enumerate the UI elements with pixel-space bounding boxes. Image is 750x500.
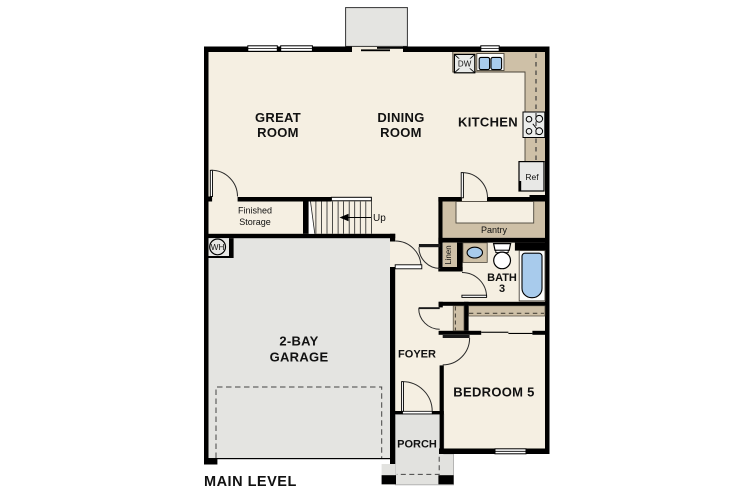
- svg-text:FOYER: FOYER: [398, 349, 436, 361]
- svg-text:2-BAY: 2-BAY: [279, 334, 318, 349]
- svg-text:Storage: Storage: [239, 217, 271, 227]
- svg-text:KITCHEN: KITCHEN: [458, 115, 518, 130]
- svg-text:BEDROOM 5: BEDROOM 5: [453, 385, 534, 400]
- svg-text:3: 3: [499, 283, 505, 295]
- svg-text:GREAT: GREAT: [255, 110, 301, 125]
- svg-text:DW: DW: [458, 59, 472, 68]
- svg-text:MAIN LEVEL: MAIN LEVEL: [204, 474, 297, 490]
- svg-text:ROOM: ROOM: [380, 125, 422, 140]
- svg-text:Up: Up: [373, 213, 386, 224]
- svg-text:Pantry: Pantry: [481, 225, 508, 235]
- svg-text:WH: WH: [211, 243, 225, 252]
- svg-text:Linen: Linen: [444, 245, 453, 264]
- svg-text:ROOM: ROOM: [257, 125, 299, 140]
- svg-text:PORCH: PORCH: [397, 439, 437, 451]
- svg-text:DINING: DINING: [377, 110, 424, 125]
- svg-text:GARAGE: GARAGE: [270, 350, 329, 365]
- svg-text:Ref: Ref: [525, 172, 539, 182]
- svg-text:Finished: Finished: [238, 206, 272, 216]
